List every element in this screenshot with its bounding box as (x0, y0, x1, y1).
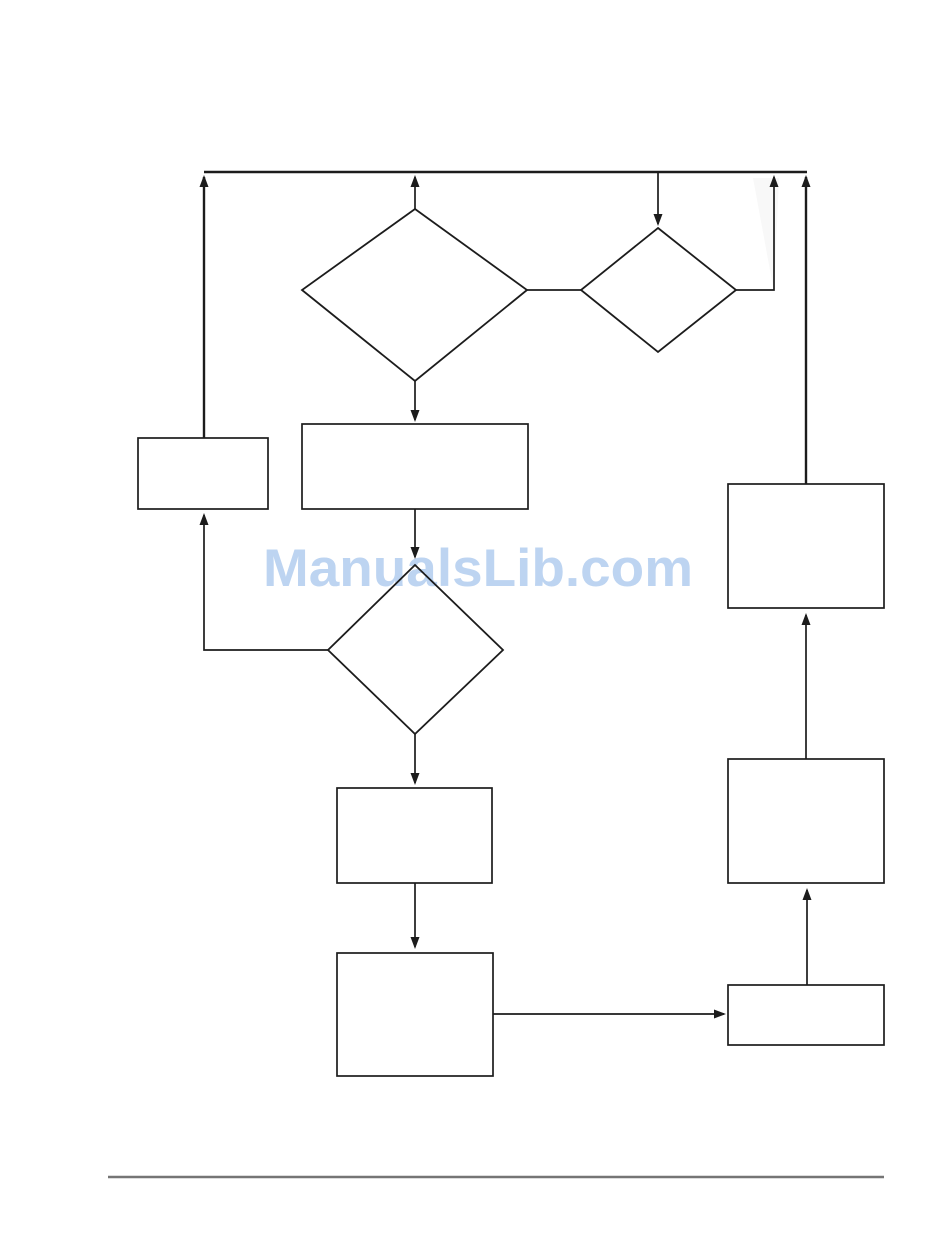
manual-page: ManualsLib.com (0, 0, 950, 1246)
flowchart-canvas: ManualsLib.com (0, 0, 950, 1246)
process-box-mid (337, 788, 492, 883)
process-box-left (138, 438, 268, 509)
flowchart-lines-group (138, 172, 884, 1076)
decision-diamond-main (302, 209, 527, 381)
scan-artifact-wedge (753, 178, 779, 292)
process-box-right-top (728, 484, 884, 608)
process-box-right-mid (728, 759, 884, 883)
watermark-text: ManualsLib.com (263, 539, 693, 598)
process-box-bottom (337, 953, 493, 1076)
decision-diamond-secondary (581, 228, 736, 352)
process-box-top-center (302, 424, 528, 509)
process-box-right-bottom (728, 985, 884, 1045)
